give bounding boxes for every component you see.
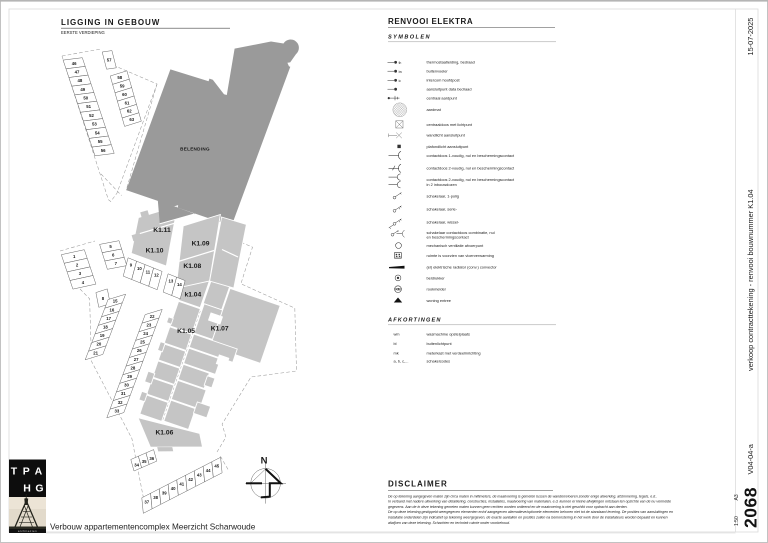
svg-text:contactdoos 2-voudig, nul en b: contactdoos 2-voudig, nul en bescherming… <box>427 166 516 171</box>
svg-text:K1.10: K1.10 <box>146 248 164 255</box>
svg-text:16: 16 <box>110 307 115 312</box>
svg-text:63: 63 <box>129 117 134 122</box>
svg-text:47: 47 <box>75 70 80 75</box>
svg-text:23: 23 <box>147 322 152 327</box>
svg-text:TPA: TPA <box>11 465 48 477</box>
svg-text:2068: 2068 <box>741 487 761 528</box>
svg-text:61: 61 <box>125 100 130 105</box>
svg-text:K1.05: K1.05 <box>177 328 195 335</box>
svg-text:ic: ic <box>399 79 402 83</box>
svg-text:BELENDING: BELENDING <box>180 147 210 152</box>
svg-text:25: 25 <box>140 340 145 345</box>
svg-text:schakelaar, serie-: schakelaar, serie- <box>427 207 458 212</box>
svg-text:35: 35 <box>142 459 147 464</box>
svg-text:36: 36 <box>149 456 154 461</box>
svg-text:thermostaatleiding, bedraad: thermostaatleiding, bedraad <box>427 60 475 65</box>
svg-text:wm: wm <box>394 332 400 337</box>
svg-text:ruimte is voorzien van vloerve: ruimte is voorzien van vloerverwarming <box>427 253 494 258</box>
svg-text:A3: A3 <box>734 494 740 500</box>
svg-text:wasmachine opstelplaats: wasmachine opstelplaats <box>427 332 471 337</box>
svg-text:30: 30 <box>124 383 129 388</box>
svg-text:15: 15 <box>113 299 118 304</box>
svg-text:k1.04: k1.04 <box>185 292 202 299</box>
svg-text:meterkast met verdeelinrichtin: meterkast met verdeelinrichting <box>427 350 481 355</box>
svg-text:plafondlicht aansluitpunt: plafondlicht aansluitpunt <box>427 144 470 149</box>
svg-text:17: 17 <box>106 316 111 321</box>
svg-text:57: 57 <box>107 58 112 63</box>
svg-text:schakelaar, wissel-: schakelaar, wissel- <box>427 220 460 225</box>
svg-text:mechanisch ventilatie afvoerpu: mechanisch ventilatie afvoerpunt <box>427 243 485 248</box>
svg-text:th: th <box>399 61 402 65</box>
svg-text:De op deze tekening gestippeld: De op deze tekening gestippeld weergegev… <box>388 510 673 514</box>
svg-text:K1.09: K1.09 <box>192 240 210 247</box>
svg-text:1:50: 1:50 <box>734 516 740 526</box>
svg-text:rookmelder: rookmelder <box>427 287 447 292</box>
svg-text:contactdoos 1-voudig, nul en b: contactdoos 1-voudig, nul en bescherming… <box>427 153 516 158</box>
svg-text:52: 52 <box>89 113 94 118</box>
svg-text:48: 48 <box>78 78 83 83</box>
svg-text:In verband met nadere uitwerki: In verband met nadere uitwerking van det… <box>388 500 671 504</box>
svg-text:EERSTE VERDIEPING: EERSTE VERDIEPING <box>61 30 105 35</box>
svg-text:centraaldoos met lichtpunt: centraaldoos met lichtpunt <box>427 122 473 127</box>
svg-text:28: 28 <box>131 365 136 370</box>
svg-text:60: 60 <box>122 92 127 97</box>
svg-text:53: 53 <box>92 122 97 127</box>
svg-text:21: 21 <box>93 350 98 355</box>
svg-text:29: 29 <box>127 374 132 379</box>
svg-text:18: 18 <box>103 325 108 330</box>
svg-text:43: 43 <box>197 473 202 478</box>
svg-text:34: 34 <box>134 463 139 468</box>
svg-text:buitenlichtpunt: buitenlichtpunt <box>427 341 453 346</box>
svg-text:62: 62 <box>127 109 132 114</box>
svg-text:31: 31 <box>121 391 126 396</box>
svg-text:verkoop contracttekening - ren: verkoop contracttekening - renvooi bouwn… <box>746 189 755 371</box>
svg-text:59: 59 <box>120 84 125 89</box>
svg-text:woning entree: woning entree <box>427 298 451 303</box>
svg-text:RM: RM <box>395 288 400 292</box>
svg-text:33: 33 <box>115 408 120 413</box>
svg-text:26: 26 <box>137 348 142 353</box>
svg-text:38: 38 <box>153 495 158 500</box>
svg-text:13: 13 <box>169 279 174 284</box>
svg-text:51: 51 <box>86 104 91 109</box>
svg-text:aardmat: aardmat <box>427 107 442 112</box>
svg-text:12: 12 <box>154 273 159 278</box>
svg-text:LIGGING IN GEBOUW: LIGGING IN GEBOUW <box>61 18 160 27</box>
svg-text:in 2 inbouwdozen: in 2 inbouwdozen <box>427 182 457 187</box>
svg-text:schakelaar, 1-polig: schakelaar, 1-polig <box>427 194 459 199</box>
svg-text:SYMBOLEN: SYMBOLEN <box>388 35 431 41</box>
svg-text:20: 20 <box>97 342 102 347</box>
svg-text:gegevens. Aan de in deze teken: gegevens. Aan de in deze tekening gemete… <box>388 505 628 509</box>
svg-text:11: 11 <box>146 269 151 274</box>
svg-text:24: 24 <box>143 331 148 336</box>
svg-text:55: 55 <box>98 139 103 144</box>
svg-text:K1.08: K1.08 <box>183 263 201 270</box>
svg-text:Verbouw appartementencomplex M: Verbouw appartementencomplex Meerzicht S… <box>50 523 256 532</box>
svg-text:32: 32 <box>118 400 123 405</box>
svg-text:beldrukker: beldrukker <box>427 275 446 280</box>
svg-text:bl: bl <box>394 341 397 346</box>
svg-text:RENVOOI ELEKTRA: RENVOOI ELEKTRA <box>388 17 473 26</box>
svg-text:AFKORTINGEN: AFKORTINGEN <box>387 318 442 324</box>
svg-text:44: 44 <box>206 468 211 473</box>
svg-text:DISCLAIMER: DISCLAIMER <box>388 480 448 489</box>
svg-text:42: 42 <box>188 477 193 482</box>
svg-text:39: 39 <box>162 491 167 496</box>
svg-text:V04-04-a: V04-04-a <box>746 443 755 474</box>
svg-text:afwijken van deze tekening. Sc: afwijken van deze tekening. Schachten en… <box>388 521 510 525</box>
svg-text:19: 19 <box>100 333 105 338</box>
svg-text:40: 40 <box>171 486 176 491</box>
svg-text:54: 54 <box>95 130 100 135</box>
svg-text:installatie onderdelen zijn in: installatie onderdelen zijn indicatief o… <box>388 516 668 520</box>
svg-text:22: 22 <box>150 314 155 319</box>
svg-text:41: 41 <box>179 482 184 487</box>
svg-text:37: 37 <box>144 500 149 505</box>
svg-text:27: 27 <box>134 357 139 362</box>
svg-text:schakelcodes: schakelcodes <box>427 358 451 363</box>
svg-text:centraal aardpunt: centraal aardpunt <box>427 96 458 101</box>
svg-text:N: N <box>261 456 268 467</box>
svg-text:10: 10 <box>137 266 142 271</box>
svg-text:intercom hoofdpost: intercom hoofdpost <box>427 78 461 83</box>
svg-text:56: 56 <box>101 148 106 153</box>
svg-text:architecten: architecten <box>18 529 37 533</box>
svg-text:en beschermingscontact: en beschermingscontact <box>427 235 470 240</box>
svg-text:a, b, c,...: a, b, c,... <box>394 358 409 363</box>
svg-text:58: 58 <box>117 75 122 80</box>
svg-text:HG: HG <box>23 483 48 495</box>
svg-text:K1.06: K1.06 <box>155 430 173 437</box>
svg-text:mk: mk <box>394 350 399 355</box>
svg-text:14: 14 <box>177 282 182 287</box>
svg-text:wandlicht aansluitpunt: wandlicht aansluitpunt <box>427 133 466 138</box>
svg-text:De op tekening aangegeven mate: De op tekening aangegeven maten zijn cir… <box>388 494 657 498</box>
svg-text:15-07-2025: 15-07-2025 <box>746 18 755 56</box>
svg-text:(el) elektrische radiator (con: (el) elektrische radiator (conv.) convec… <box>427 265 498 270</box>
svg-text:buitenvoeler: buitenvoeler <box>427 69 449 74</box>
svg-text:50: 50 <box>83 96 88 101</box>
svg-text:49: 49 <box>80 87 85 92</box>
svg-text:K1.07: K1.07 <box>211 326 229 333</box>
svg-text:45: 45 <box>214 464 219 469</box>
svg-text:aansluitpunt data bedraad: aansluitpunt data bedraad <box>427 87 472 92</box>
svg-text:bv: bv <box>399 70 403 74</box>
svg-text:K1.11: K1.11 <box>153 227 171 234</box>
svg-text:46: 46 <box>72 61 77 66</box>
